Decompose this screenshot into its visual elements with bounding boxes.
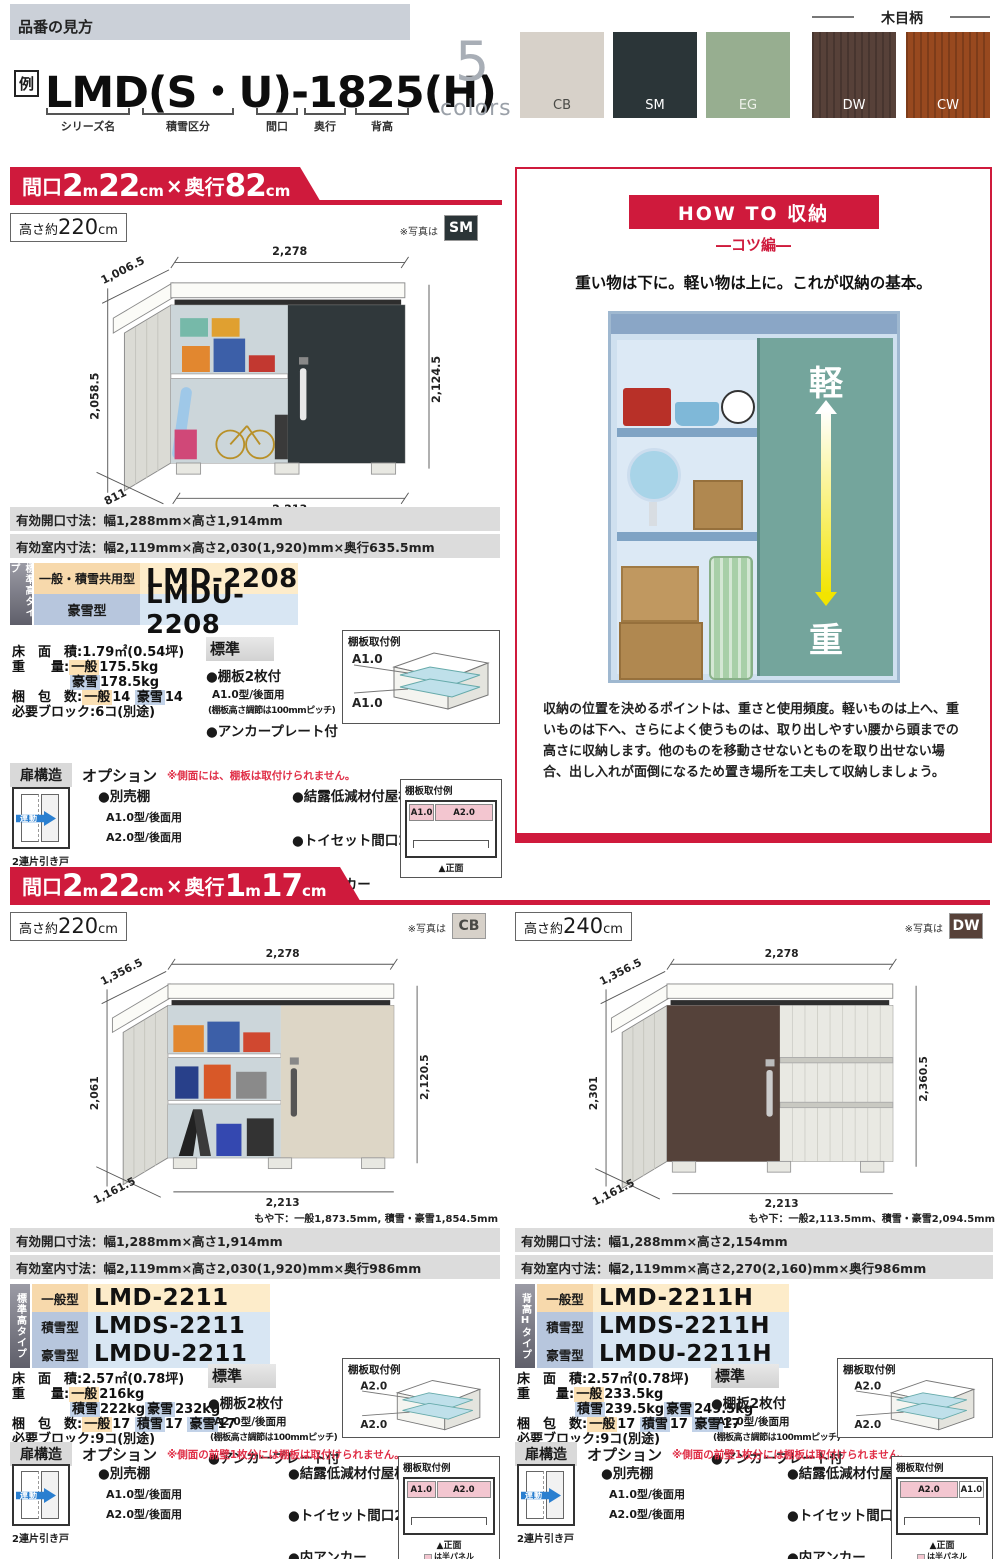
front-legend: は半パネル [896,1551,988,1559]
floor-area-line: 床 面 積:2.57㎡(0.78坪) [12,1372,236,1387]
package-value: 14 [112,690,130,705]
width-label: 間口 [256,118,298,134]
banner-underline [10,200,502,205]
standard-item-type: A2.0型/後面用 [214,1414,344,1429]
shelf-install-example-3d: 棚板取付例 A2.0 A2.0 [342,1358,500,1438]
model-name: LMD-2211H [593,1284,789,1312]
dim-right-height: 2,360.5 [917,1056,930,1102]
banner-num: 2 [62,168,83,204]
swatch-code-cb: CB [553,98,571,113]
weight-tag: 一般 [69,660,99,675]
front-cell-a10: A1.0 [959,1481,984,1498]
part-number-guide-label: 品番の見方 [18,16,93,37]
fan-stand [649,502,657,526]
front-view-rect: A1.0A2.0 [405,800,497,858]
package-value: 17 [617,1417,635,1432]
shelf-install-example-front: 棚板取付例 A2.0A1.0 ▲正面 は半パネル [891,1456,993,1559]
dim-bottom-width: 2,213 [765,1197,799,1208]
shelf-restriction-note: ※側面には、棚板は取付けられません。 [167,768,355,783]
wood-grain-line-left [812,16,854,18]
howto-lead: 重い物は下に。軽い物は上に。これが収納の基本。 [517,271,990,293]
package-value: 17 [112,1417,130,1432]
part-number-guide-header: 品番の見方 [10,4,410,40]
package-tag: 積雪 [640,1417,670,1432]
shelf-install-example-3d: 棚板取付例 A1.0 A1.0 [342,630,500,724]
toolbox-illustration [623,388,671,426]
door-outline: 連動 [517,1464,575,1526]
options-column-1: ●別売棚 A1.0型/後面用 A2.0型/後面用 [98,1462,182,1522]
model-name: LMDS-2211 [88,1312,270,1340]
package-line: 梱 包 数:一般17 積雪17 豪雪17 [12,1417,236,1432]
banner-underline [10,900,990,905]
model-type: 豪雪型 [537,1340,593,1368]
shed-diagram-2211h: 2,278 1,356.5 2,301 2,360.5 1,161.5 2,21… [543,932,963,1208]
series-name-label: シリーズ名 [46,118,130,134]
model-name: LMD-2211 [88,1284,270,1312]
snow-class-label: 積雪区分 [142,118,234,134]
standard-title: 標準 [711,1364,779,1388]
banner-depth-label: 奥行 [185,871,225,900]
color-swatch-cb: CB [520,32,604,118]
example-badge: 例 [14,70,39,97]
weight-line-2: 豪雪178.5kg [12,675,184,690]
banner-num: 17 [261,868,302,904]
interior-dimensions-bar: 有効室内寸法：幅2,119mm×高さ2,030(1,920)mm×奥行986mm [10,1255,500,1279]
banner-num: 2 [62,868,83,904]
brace-snow [142,108,234,115]
half-panel-swatch [917,1554,925,1559]
front-view-rect: A2.0A1.0 [896,1477,988,1535]
size-banner-2211: 間口2m22cm×奥行1m17cm [10,867,362,904]
large-box-bottom [619,622,703,680]
weight-value: 239.5kg [605,1402,664,1417]
shelf-3d-sketch: A2.0 A2.0 [843,1377,987,1435]
option-shelf-a20: A2.0型/後面用 [609,1506,685,1522]
arrow-down-icon [815,592,837,606]
door-structure-title: 扉構造 [10,763,72,787]
color-swatch-sm: SM [613,32,697,118]
swatch-code-dw: DW [843,98,866,113]
interior-dimensions-bar: 有効室内寸法：幅2,119mm×高さ2,270(2,160)mm×奥行986mm [515,1255,993,1279]
wood-grain-line-right [950,16,990,18]
floor-label: 床 面 積: [517,1372,587,1387]
type-tab: 標準高タイプ [10,1284,30,1368]
shelf-3d-sketch: A1.0 A1.0 [348,649,494,715]
heavy-kanji: 重 [760,613,893,662]
banner-num: 22 [98,168,139,204]
weight-value: 233.5kg [604,1387,663,1402]
swatch-code-sm: SM [645,98,664,113]
door-structure-title: 扉構造 [515,1442,577,1466]
option-shelf: ●別売棚 [601,1462,685,1482]
shelf-label-2: A2.0 [854,1419,881,1431]
weight-tag: 一般 [574,1387,604,1402]
dim-top-width: 2,278 [272,245,307,258]
model-name: LMDU-2208 [140,594,298,625]
banner-num: 22 [98,868,139,904]
package-label: 梱 包 数: [12,690,82,705]
shed-diagram-2208: 2,278 1,006.5 2,058.5 2,124.5 [50,229,470,515]
banner-width-label: 間口 [22,871,62,900]
cardboard-box-illustration [693,480,743,530]
option-shelf-a10: A1.0型/後面用 [106,1486,182,1502]
colors-count: 5 [455,30,489,93]
sliding-door-diagram: 連動 2連片引き戸 [517,1464,581,1545]
weight-label: 重 量: [12,660,69,675]
standard-item-shelves: ●棚板2枚付 [206,665,346,685]
banner-depth-label: 奥行 [185,171,225,200]
color-swatch-dw: DW [812,32,896,118]
depth-label: 奥行 [304,118,346,134]
weight-tag: 豪雪 [664,1402,694,1417]
standard-title: 標準 [208,1364,276,1388]
dim-left-height: 2,058.5 [88,373,101,420]
dim-top-width: 2,278 [266,947,300,960]
basin-illustration [675,402,719,426]
dim-bottom-width: 2,213 [266,1196,300,1208]
size-banner-2208: 間口2m22cm×奥行82cm [10,167,322,204]
floor-value: 1.79㎡(0.54坪) [82,645,184,660]
color-swatch-eg: EG [706,32,790,118]
model-table-2208: 標準高タイプ 一般・積雪共用型LMD-2208 豪雪型LMDU-2208 [10,563,298,625]
door-structure-title: 扉構造 [10,1442,72,1466]
package-tag: 一般 [587,1417,617,1432]
brace-width [256,108,298,115]
shelf-install-example-front: 棚板取付例 A1.0A2.0 ▲正面 [400,779,502,878]
weight-tag: 積雪 [575,1402,605,1417]
banner-times: × [164,874,185,898]
weight-value: 222kg [100,1402,145,1417]
option-shelf-a20: A2.0型/後面用 [106,829,182,845]
opening-dimensions-bar: 有効開口寸法：幅1,288mm×高さ1,914mm [10,1228,500,1252]
section-2208: 間口2m22cm×奥行82cm 高さ約220cm ※写真は SM 2,278 1… [10,167,502,845]
package-tag: 豪雪 [135,690,165,705]
howto-title: HOW TO 収納 [629,195,879,229]
floor-label: 床 面 積: [12,645,82,660]
type-tab: 背高Hタイプ [515,1284,535,1368]
weight-value: 178.5kg [100,675,159,690]
standard-item-anchor: ●アンカープレート付 [206,720,346,740]
shelf-install-example-front: 棚板取付例 A1.0A2.0 ▲正面 は半パネル [398,1456,500,1559]
dim-left-height: 2,061 [88,1076,101,1110]
dim-roof-depth: 1,356.5 [98,956,145,988]
weight-tag: 積雪 [70,1402,100,1417]
half-panel-label: は半パネル [434,1551,474,1559]
illustration-shelves [617,340,757,674]
shelf-install-example-3d: 棚板取付例 A2.0 A2.0 [837,1358,993,1438]
half-panel-label: は半パネル [927,1551,967,1559]
door-outline: 連動 [12,787,70,849]
soccer-ball-illustration [721,390,755,424]
model-row: 豪雪型LMDU-2208 [34,594,298,625]
model-type: 一般型 [32,1284,88,1312]
package-tag: 積雪 [135,1417,165,1432]
front-step [904,1517,980,1525]
suitcase-illustration [709,556,753,680]
package-tag: 一般 [82,690,112,705]
color-swatch-cw: CW [906,32,990,118]
weight-tag: 豪雪 [70,675,100,690]
tall-label: 背高 [355,118,409,134]
spec-text-block: 床 面 積:1.79㎡(0.54坪) 重 量:一般175.5kg 豪雪178.5… [12,645,184,720]
front-cell-a10: A1.0 [409,804,434,821]
large-box-top [621,566,699,622]
shelf-example-title: 棚板取付例 [348,634,494,649]
dim-right-height: 2,120.5 [418,1054,431,1100]
option-title: オプション [82,765,157,786]
model-table-2211h: 背高Hタイプ 一般型LMD-2211H 積雪型LMDS-2211H 豪雪型LMD… [515,1284,789,1368]
model-type: 豪雪型 [34,594,140,625]
shelf-board-2 [617,532,757,541]
model-type: 積雪型 [537,1312,593,1340]
catalog-page: 品番の見方 例LMD(S・U)-1825(H) シリーズ名 積雪区分 間口 奥行… [0,0,1000,1559]
model-row: 一般型LMD-2211H [537,1284,789,1312]
banner-num: 82 [225,168,266,204]
howto-storage-panel: HOW TO 収納 ―コツ編― 重い物は下に。軽い物は上に。これが収納の基本。 … [515,167,992,843]
door-type-caption: 2連片引き戸 [517,1530,581,1545]
brace-depth [304,108,346,115]
package-label: 梱 包 数: [517,1417,587,1432]
weight-line: 重 量:一般175.5kg [12,660,184,675]
moya-note: もや下：一般1,873.5mm, 積雪・豪雪1,854.5mm [254,1210,498,1225]
options-column-1: ●別売棚 A1.0型/後面用 A2.0型/後面用 [601,1462,685,1522]
illustration-door: 軽 重 [757,338,893,676]
shelf-board-1 [617,428,757,437]
floor-value: 2.57㎡(0.78坪) [82,1372,184,1387]
floor-area-line: 床 面 積:1.79㎡(0.54坪) [12,645,184,660]
front-caption: ▲正面 [403,1538,495,1551]
floor-label: 床 面 積: [12,1372,82,1387]
shelf-label-1: A2.0 [854,1380,881,1392]
front-cell-a20: A2.0 [435,804,493,821]
shelf-example-title: 棚板取付例 [348,1362,494,1377]
wood-grain-label: 木目柄 [856,8,948,28]
blocks-line: 必要ブロック:6コ(別途) [12,705,184,720]
model-type: 一般・積雪共用型 [34,563,140,594]
sliding-door-diagram: 連動 2連片引き戸 [12,787,76,868]
brace-height [355,108,409,115]
standard-equipment-block: 標準 ●棚板2枚付 A1.0型/後面用 (棚板高さ調節は100mmピッチ) ●ア… [206,637,346,740]
front-example-title: 棚板取付例 [403,1460,495,1474]
dim-top-width: 2,278 [765,947,799,960]
opening-dimensions-bar: 有効開口寸法：幅1,288mm×高さ2,154mm [515,1228,993,1252]
spec-text-block: 床 面 積:2.57㎡(0.78坪) 重 量:一般216kg 積雪222kg豪雪… [12,1372,236,1447]
section-2211-standard: 高さ約220cm ※写真は CB 2,278 1,356.5 2,061 2,1… [10,912,502,1559]
standard-title: 標準 [206,637,274,661]
shelf-label-2: A2.0 [360,1419,387,1431]
sliding-door-diagram: 連動 2連片引き戸 [12,1464,76,1545]
front-legend: は半パネル [403,1551,495,1559]
interior-dimensions-bar: 有効室内寸法：幅2,119mm×高さ2,030(1,920)mm×奥行635.5… [10,534,500,558]
weight-value: 175.5kg [99,660,158,675]
front-step [411,1517,487,1525]
door-type-caption: 2連片引き戸 [12,853,76,868]
weight-label: 重 量: [517,1387,574,1402]
opening-dimensions-bar: 有効開口寸法：幅1,288mm×高さ1,914mm [10,507,500,531]
option-shelf-a10: A1.0型/後面用 [106,809,182,825]
moya-note: もや下：一般2,113.5mm、積雪・豪雪2,094.5mm [749,1210,995,1225]
weight-tag: 豪雪 [145,1402,175,1417]
half-panel-swatch [424,1554,432,1559]
front-caption: ▲正面 [896,1538,988,1551]
standard-item-shelves: ●棚板2枚付 [711,1392,847,1412]
option-shelf: ●別売棚 [98,1462,182,1482]
section-2211-banner: 間口2m22cm×奥行1m17cm [10,867,990,904]
fan-illustration [627,448,681,502]
dim-right-height: 2,124.5 [430,356,443,403]
howto-subtitle: ―コツ編― [517,234,990,255]
howto-body-text: 収納の位置を決めるポイントは、重さと使用頻度。軽いものは上へ、重いものは下へ、さ… [543,699,964,783]
standard-item-pitch: (棚板高さ調節は100mmピッチ) [208,703,346,716]
package-value: 17 [670,1417,688,1432]
shelf-label-2: A1.0 [352,696,383,710]
dim-roof-depth: 1,006.5 [99,254,147,287]
option-shelf-a20: A2.0型/後面用 [106,1506,182,1522]
dim-roof-depth: 1,356.5 [597,956,644,988]
light-kanji: 軽 [760,356,893,405]
front-example-title: 棚板取付例 [405,783,497,797]
model-type: 積雪型 [32,1312,88,1340]
package-value: 14 [165,690,183,705]
front-example-title: 棚板取付例 [896,1460,988,1474]
door-option-header: 扉構造 オプション ※側面には、棚板は取付けられません。 [10,763,355,787]
front-cell-a20: A2.0 [900,1481,958,1498]
front-cell-a10: A1.0 [407,1481,436,1498]
dim-left-height: 2,301 [587,1076,600,1110]
howto-bottom-bar [517,833,990,841]
weight-label: 重 量: [12,1387,69,1402]
model-type: 一般型 [537,1284,593,1312]
option-shelf-a10: A1.0型/後面用 [609,1486,685,1502]
banner-num: 1 [225,868,246,904]
shelf-example-title: 棚板取付例 [843,1362,987,1377]
brace-series [46,108,130,115]
shelf-label-1: A1.0 [352,652,383,666]
package-tag: 一般 [82,1417,112,1432]
weight-line-2: 積雪222kg豪雪232kg [12,1402,236,1417]
weight-value: 216kg [99,1387,144,1402]
floor-value: 2.57㎡(0.78坪) [587,1372,689,1387]
shelf-3d-sketch: A2.0 A2.0 [348,1377,494,1435]
shed-diagram-2211: 2,278 1,356.5 2,061 2,120.5 1,161.5 [44,932,464,1208]
section-2211h: 高さ約240cm ※写真は DW 2,278 1,356.5 2,301 2,3… [515,912,995,1559]
shelf-restriction-note: ※側面の前壁1枚分には棚板は取付けられません。 [672,1447,910,1462]
weight-line: 重 量:一般216kg [12,1387,236,1402]
model-name: LMDS-2211H [593,1312,789,1340]
storage-illustration: 軽 重 [608,311,900,683]
colors-word: colors [440,96,512,121]
type-tab: 標準高タイプ [10,563,32,625]
weight-tag: 一般 [69,1387,99,1402]
option-shelf: ●別売棚 [98,785,182,805]
standard-item-type: A2.0型/後面用 [717,1414,847,1429]
front-cell-a20: A2.0 [437,1481,491,1498]
model-type: 豪雪型 [32,1340,88,1368]
standard-item-shelves: ●棚板2枚付 [208,1392,344,1412]
package-label: 梱 包 数: [12,1417,82,1432]
front-view-rect: A1.0A2.0 [403,1477,495,1535]
model-row: 積雪型LMDS-2211 [32,1312,270,1340]
package-value: 17 [165,1417,183,1432]
model-row: 一般型LMD-2211 [32,1284,270,1312]
shelf-restriction-note: ※側面の前壁1枚分には棚板は取付けられません。 [167,1447,405,1462]
banner-width-label: 間口 [22,171,62,200]
illustration-top-bar [611,314,897,334]
arrow-shaft [821,410,831,596]
swatch-code-cw: CW [937,98,959,113]
model-table-2211: 標準高タイプ 一般型LMD-2211 積雪型LMDS-2211 豪雪型LMDU-… [10,1284,270,1368]
standard-item-type: A1.0型/後面用 [212,687,346,702]
options-column-1: ●別売棚 A1.0型/後面用 A2.0型/後面用 [98,785,182,845]
swatch-code-eg: EG [739,98,757,113]
shelf-label-1: A2.0 [360,1380,387,1392]
package-line: 梱 包 数:一般14 豪雪14 [12,690,184,705]
weight-arrow [819,400,833,606]
banner-times: × [164,174,185,198]
dim-base-depth: 1,161.5 [91,1174,138,1206]
front-step [413,840,489,848]
dim-base-depth: 1,161.5 [590,1176,637,1208]
door-type-caption: 2連片引き戸 [12,1530,76,1545]
model-row: 積雪型LMDS-2211H [537,1312,789,1340]
door-outline: 連動 [12,1464,70,1526]
